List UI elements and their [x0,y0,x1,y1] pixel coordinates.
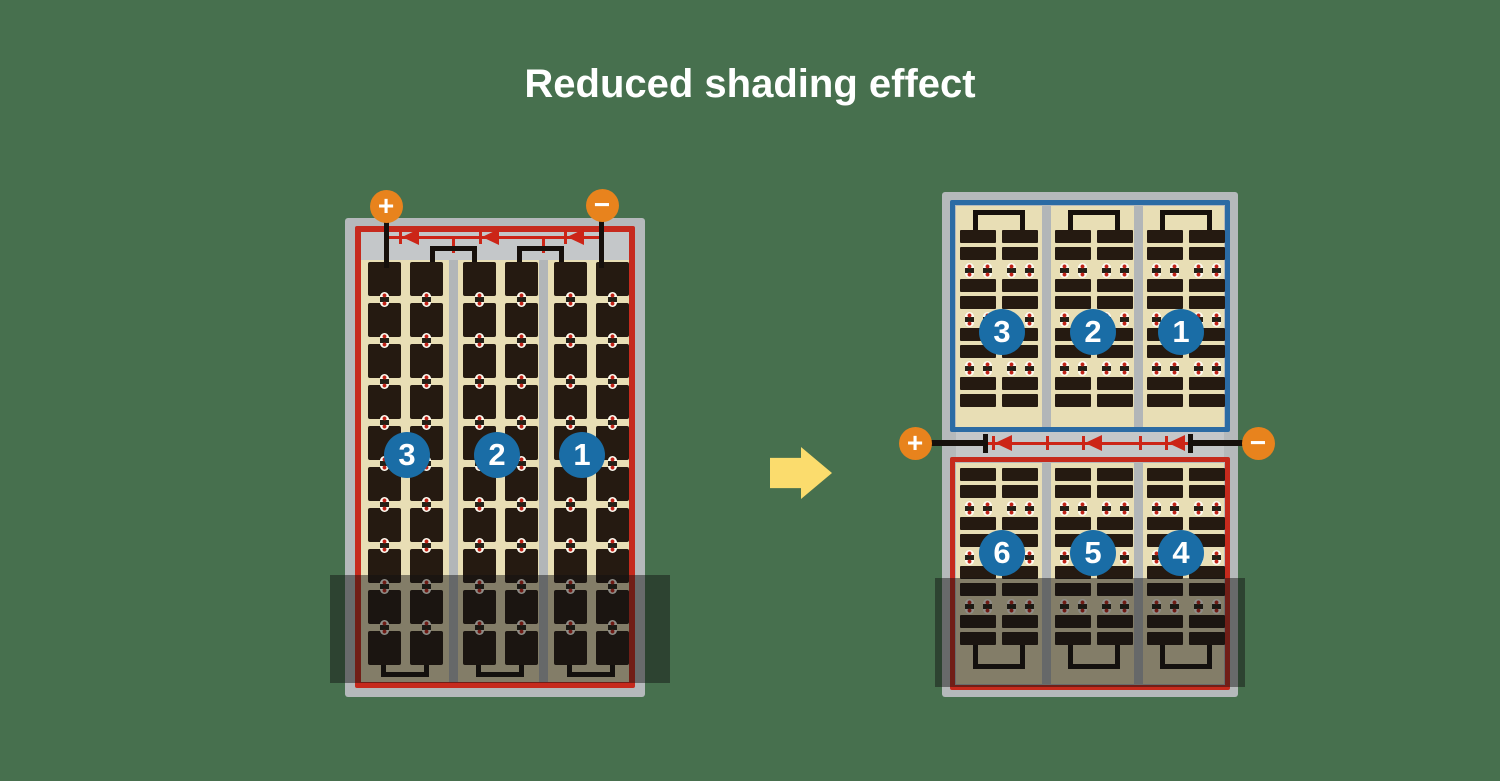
solar-half-cell [1055,279,1091,292]
diode-icon [482,229,499,245]
cell-connector [475,415,484,430]
terminal-wire [599,221,604,268]
cell-connector [380,292,389,307]
cell-connector [608,292,617,307]
terminal-wire [384,222,389,268]
cell-connector [1212,361,1221,376]
solar-half-cell [1147,377,1183,390]
solar-half-cell [1002,279,1038,292]
solar-half-cell [1002,394,1038,407]
string-number-circle: 1 [1158,309,1204,355]
positive-terminal: + [370,190,403,223]
solar-half-cell [1055,230,1091,243]
solar-cell [410,344,443,378]
cell-connector [566,538,575,553]
solar-half-cell [960,247,996,260]
solar-half-cell [1189,485,1225,498]
cell-connector [1060,312,1069,327]
cell-connector [422,538,431,553]
terminal-wire [930,440,986,446]
cell-connector [380,374,389,389]
cell-connector [517,538,526,553]
cell-connector [380,538,389,553]
solar-half-cell [1002,517,1038,530]
cell-connector [965,263,974,278]
solar-cell [463,303,496,337]
cell-connector [566,333,575,348]
cell-connector [1194,263,1203,278]
solar-cell [463,385,496,419]
solar-cell [410,303,443,337]
solar-half-cell [1055,517,1091,530]
shading-overlay [330,575,670,683]
cell-connector [1120,263,1129,278]
cell-connector [517,415,526,430]
cell-connector [965,501,974,516]
cell-connector [475,292,484,307]
solar-half-cell [960,296,996,309]
cell-connector [1152,263,1161,278]
solar-half-cell [1147,247,1183,260]
cell-connector [1120,550,1129,565]
cell-connector [965,550,974,565]
solar-half-cell [1189,247,1225,260]
cell-connector [1170,263,1179,278]
solar-half-cell [1002,247,1038,260]
cell-connector [1078,263,1087,278]
arrow-right-icon [770,447,832,499]
string-number-circle: 2 [474,432,520,478]
cell-connector [1025,263,1034,278]
solar-half-cell [1055,247,1091,260]
negative-terminal: − [586,189,619,222]
solar-half-cell [1189,296,1225,309]
solar-half-cell [960,230,996,243]
solar-cell [368,508,401,542]
cell-connector [475,497,484,512]
cell-connector [608,333,617,348]
solar-half-cell [1189,377,1225,390]
solar-half-cell [1147,230,1183,243]
cell-connector [1025,550,1034,565]
solar-half-cell [1097,247,1133,260]
solar-cell [596,385,629,419]
cell-connector [1078,361,1087,376]
solar-cell [463,262,496,296]
solar-half-cell [1055,394,1091,407]
solar-cell [410,508,443,542]
diode-tap [1139,436,1142,450]
solar-half-cell [1002,485,1038,498]
cell-connector [608,374,617,389]
solar-half-cell [1189,279,1225,292]
solar-cell [410,262,443,296]
solar-half-cell [1147,296,1183,309]
cell-connector [1007,263,1016,278]
solar-half-cell [1147,468,1183,481]
solar-cell [463,344,496,378]
cell-connector [380,415,389,430]
solar-cell [505,344,538,378]
cell-connector [608,497,617,512]
cell-connector [380,333,389,348]
solar-half-cell [1189,394,1225,407]
solar-cell [463,508,496,542]
cell-connector [1212,550,1221,565]
string-number-circle: 3 [979,309,1025,355]
solar-half-cell [960,377,996,390]
cell-connector [1007,501,1016,516]
solar-cell [368,385,401,419]
solar-cell [596,508,629,542]
cell-connector [517,374,526,389]
cell-connector [422,292,431,307]
solar-half-cell [1189,468,1225,481]
cell-connector [1025,312,1034,327]
cell-connector [1212,501,1221,516]
cell-connector [1060,263,1069,278]
cell-connector [1060,361,1069,376]
solar-cell [596,344,629,378]
solar-half-cell [960,468,996,481]
cell-connector [965,312,974,327]
cell-connector [566,497,575,512]
cell-connector [983,501,992,516]
string-number-circle: 6 [979,530,1025,576]
cell-connector [1060,550,1069,565]
solar-cell [505,262,538,296]
solar-cell [368,344,401,378]
solar-cell [505,508,538,542]
cell-connector [983,263,992,278]
string-number-circle: 3 [384,432,430,478]
solar-half-cell [1189,230,1225,243]
solar-half-cell [1055,468,1091,481]
solar-cell [410,385,443,419]
solar-half-cell [1147,485,1183,498]
solar-cell [554,385,587,419]
solar-cell [505,385,538,419]
solar-half-cell [1055,296,1091,309]
solar-half-cell [1097,279,1133,292]
stage: Reduced shading effect 321+−321654+− [0,0,1500,781]
cell-connector [1007,361,1016,376]
cell-connector [475,374,484,389]
cell-connector [1120,361,1129,376]
diode-icon [402,229,419,245]
cell-connector [1025,501,1034,516]
cell-connector [517,292,526,307]
cell-connector [422,374,431,389]
solar-half-cell [1097,485,1133,498]
solar-half-cell [1002,377,1038,390]
cell-connector [1102,263,1111,278]
string-number-circle: 4 [1158,530,1204,576]
solar-half-cell [1055,485,1091,498]
solar-cell [505,303,538,337]
solar-cell [554,262,587,296]
string-number-circle: 1 [559,432,605,478]
solar-half-cell [1189,517,1225,530]
page-title: Reduced shading effect [0,62,1500,107]
solar-half-cell [1002,230,1038,243]
solar-half-cell [960,394,996,407]
cell-connector [422,333,431,348]
solar-cell [596,467,629,501]
solar-half-cell [1002,468,1038,481]
cell-connector [475,333,484,348]
cell-connector [1060,501,1069,516]
diode-tap [1046,436,1049,450]
cell-connector [380,497,389,512]
cell-connector [422,415,431,430]
solar-half-cell [960,279,996,292]
diode-icon [995,435,1012,451]
solar-half-cell [960,517,996,530]
solar-cell [554,303,587,337]
solar-half-cell [1097,377,1133,390]
cell-connector [965,361,974,376]
negative-terminal: − [1242,427,1275,460]
cell-connector [517,497,526,512]
solar-half-cell [1097,394,1133,407]
diode-icon [567,229,584,245]
string-number-circle: 5 [1070,530,1116,576]
solar-half-cell [1147,279,1183,292]
cell-connector [1212,312,1221,327]
cell-connector [566,292,575,307]
cell-jumper-top [973,210,1025,232]
cell-connector [608,456,617,471]
solar-half-cell [1055,377,1091,390]
string-number-circle: 2 [1070,309,1116,355]
cell-connector [1102,361,1111,376]
diode-icon [1168,435,1185,451]
cell-connector [1170,501,1179,516]
solar-cell [368,303,401,337]
positive-terminal: + [899,427,932,460]
cell-connector [1170,361,1179,376]
solar-half-cell [1097,468,1133,481]
cell-connector [1152,501,1161,516]
cell-connector [517,333,526,348]
diode-icon [1085,435,1102,451]
terminal-wire-cap [1188,434,1193,453]
solar-half-cell [1147,517,1183,530]
cell-connector [608,415,617,430]
cell-connector [1102,501,1111,516]
cell-connector [566,415,575,430]
solar-half-cell [1097,296,1133,309]
cell-jumper-top [1160,210,1212,232]
terminal-wire [1190,440,1243,446]
solar-half-cell [960,485,996,498]
cell-connector [1194,361,1203,376]
cell-connector [1212,263,1221,278]
cell-connector [1078,501,1087,516]
cell-connector [983,361,992,376]
solar-cell [554,508,587,542]
cell-connector [1120,501,1129,516]
cell-connector [566,374,575,389]
cell-connector [422,497,431,512]
solar-half-cell [1002,296,1038,309]
cell-connector [475,538,484,553]
cell-connector [1025,361,1034,376]
shading-overlay [935,578,1245,687]
cell-connector [1194,501,1203,516]
cell-connector [608,538,617,553]
solar-half-cell [1097,230,1133,243]
terminal-wire-cap [983,434,988,453]
solar-half-cell [1147,394,1183,407]
cell-jumper-top [1068,210,1120,232]
solar-half-cell [1097,517,1133,530]
cell-connector [1120,312,1129,327]
solar-cell [554,344,587,378]
solar-cell [596,303,629,337]
cell-connector [1152,361,1161,376]
